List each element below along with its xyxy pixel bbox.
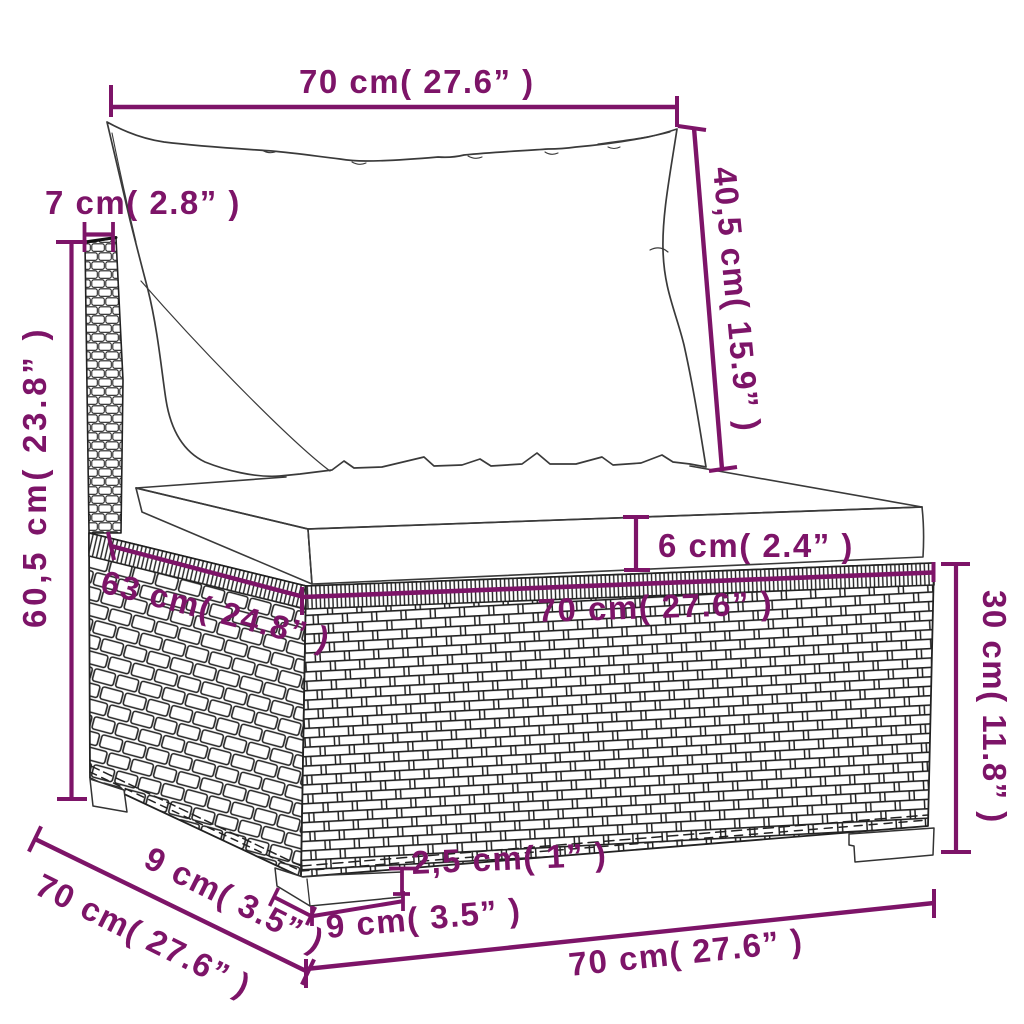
svg-text:60,5 cm( 23.8” ): 60,5 cm( 23.8” ) [16, 328, 53, 628]
svg-text:70 cm( 27.6” ): 70 cm( 27.6” ) [299, 63, 535, 100]
svg-text:30 cm( 11.8” ): 30 cm( 11.8” ) [976, 590, 1013, 824]
svg-text:70 cm( 27.6” ): 70 cm( 27.6” ) [537, 584, 774, 629]
svg-text:6 cm( 2.4” ): 6 cm( 2.4” ) [658, 527, 854, 564]
svg-text:7 cm( 2.8” ): 7 cm( 2.8” ) [45, 184, 241, 221]
